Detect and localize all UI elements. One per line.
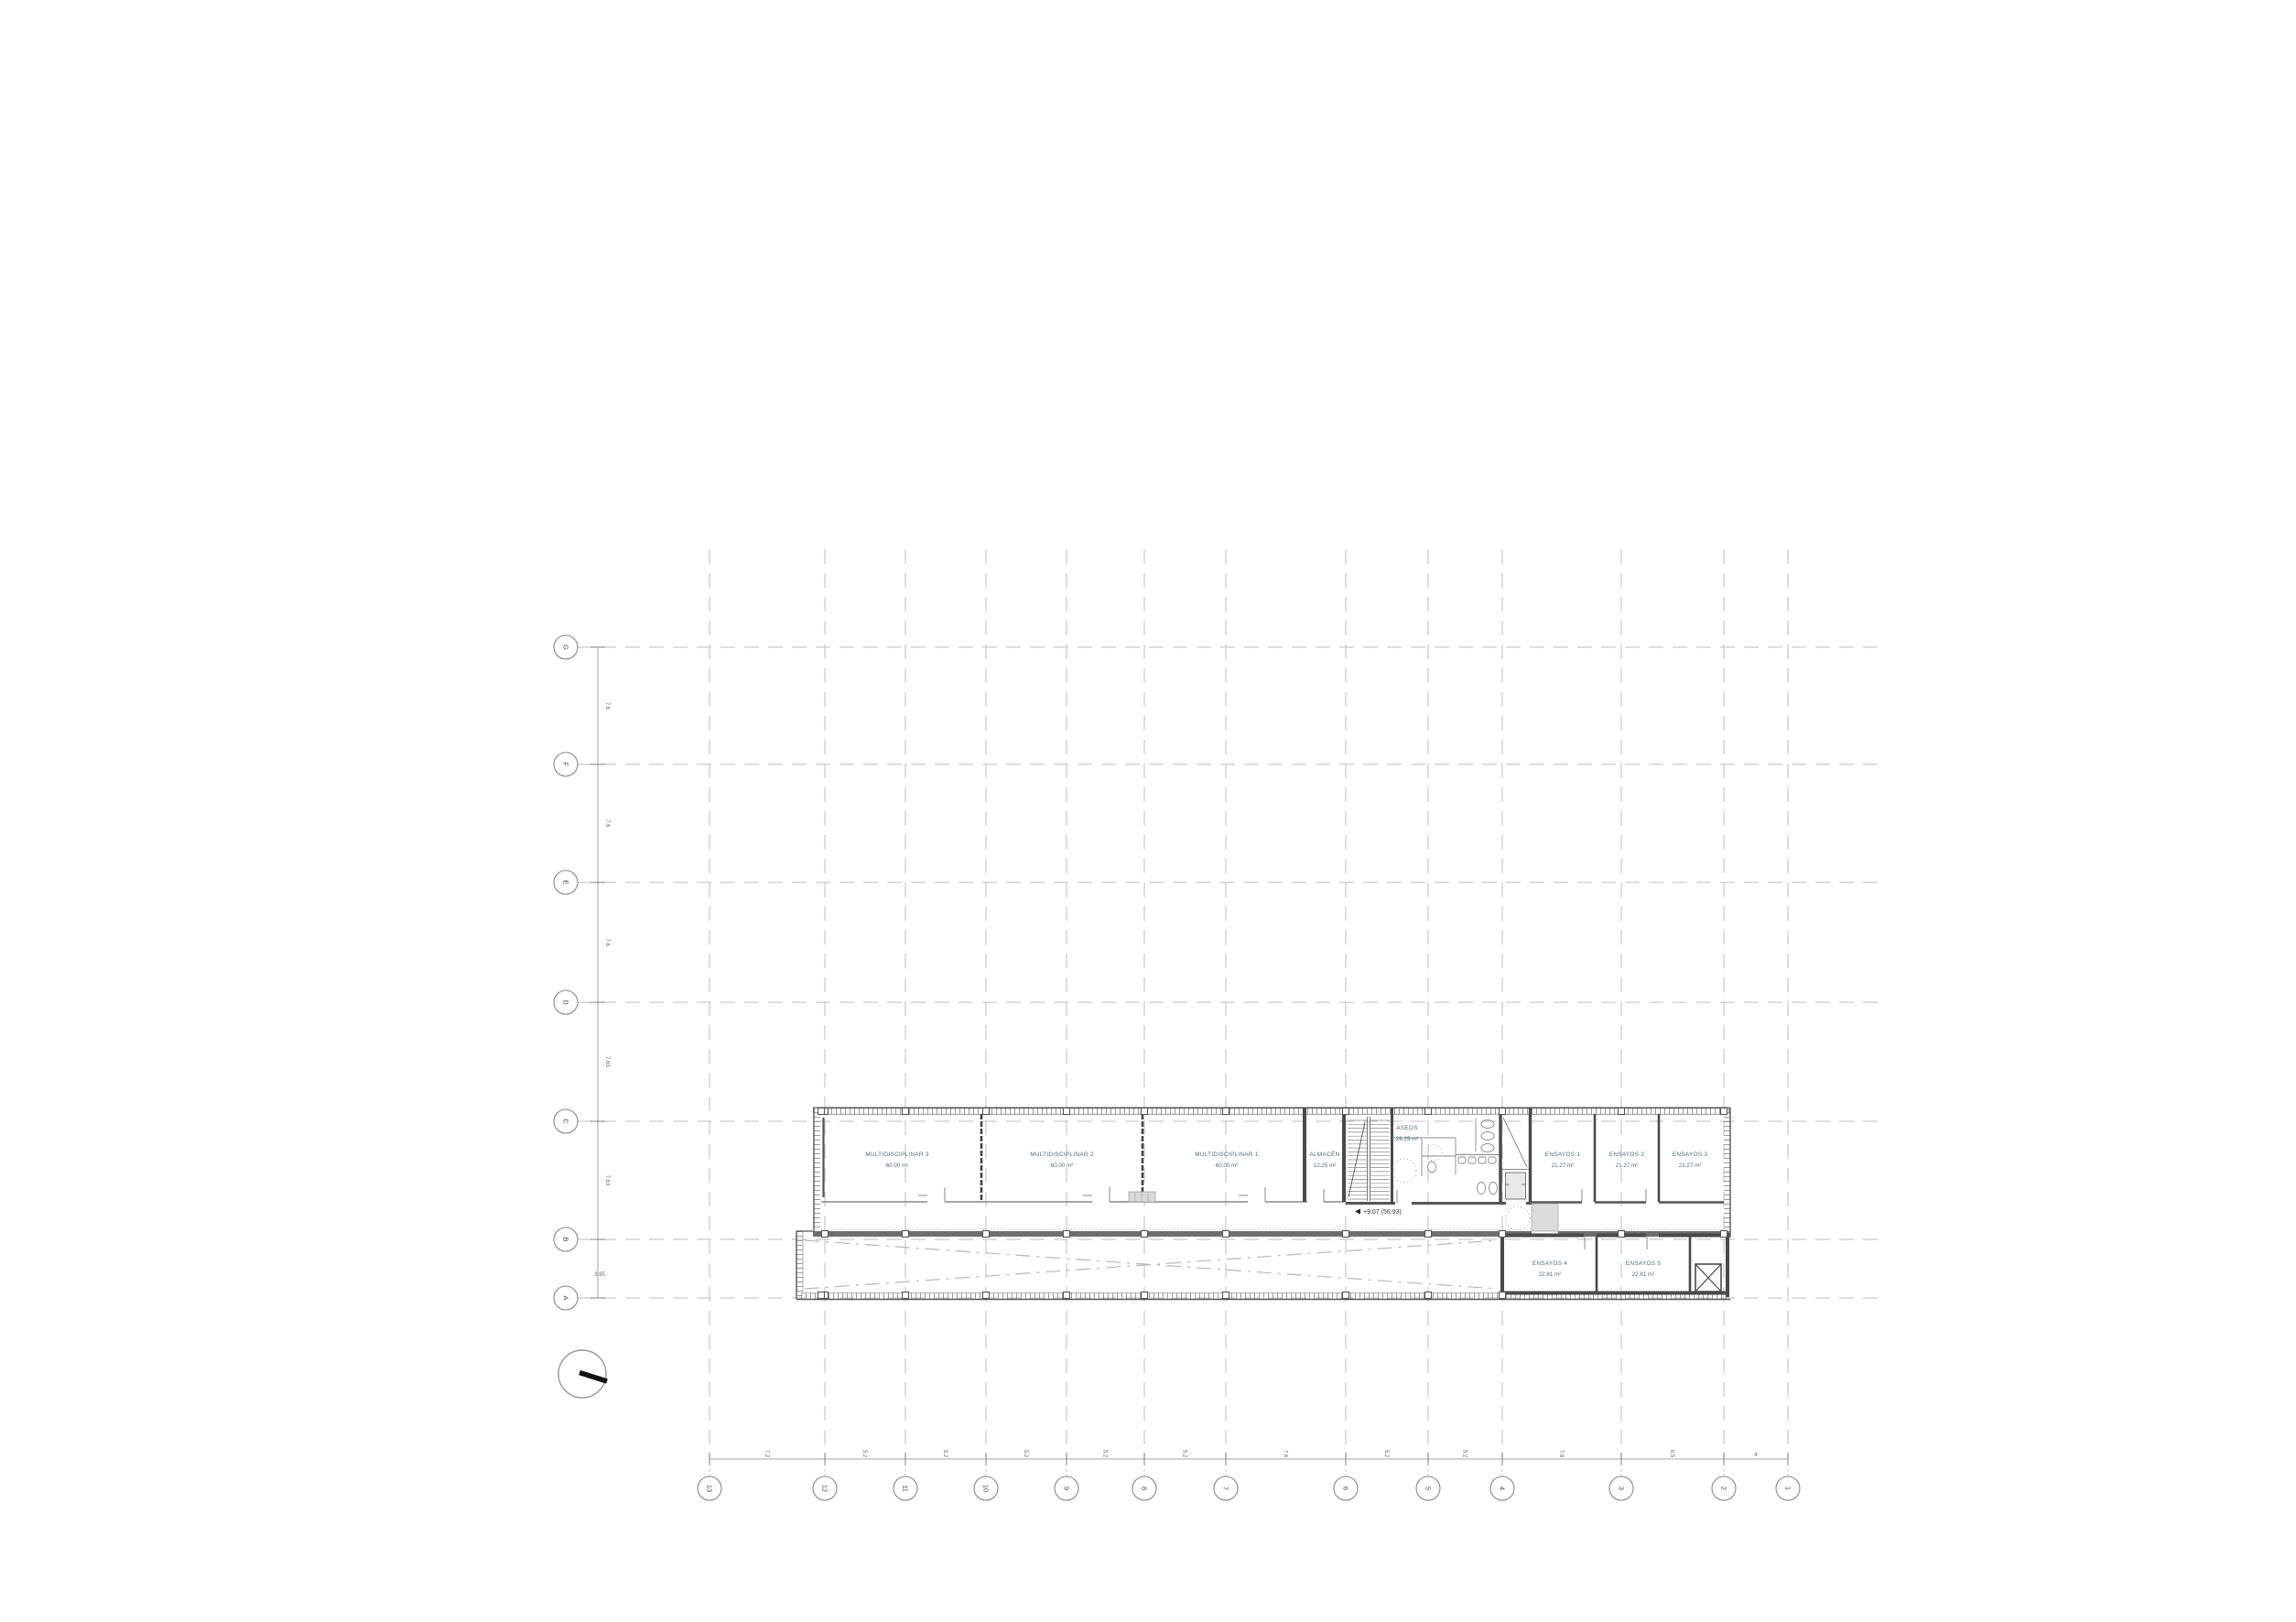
north-arrow — [558, 1350, 607, 1398]
col-dim-text: 5.2 — [1462, 1450, 1467, 1458]
elevator-shaft — [1502, 1118, 1529, 1199]
column-corridor — [1500, 1231, 1506, 1238]
room-label: ENSAYOS 4 — [1532, 1260, 1568, 1267]
grid-bubble-label-row: F — [562, 762, 570, 767]
corridor-bridge — [1532, 1204, 1558, 1231]
column-terrace — [1142, 1292, 1148, 1299]
room-area: 60.00 m² — [1051, 1162, 1073, 1169]
grid-bubble-label-row: D — [562, 1000, 570, 1005]
grid-bubble-label-col: 3 — [1618, 1487, 1626, 1490]
col-dim-text: 7.6 — [1283, 1450, 1288, 1458]
grid-bubble-label-col: 8 — [1141, 1487, 1149, 1490]
column-north — [818, 1108, 825, 1115]
elevator-car — [1506, 1173, 1526, 1199]
room-label: ALMACÉN — [1310, 1150, 1340, 1158]
grid-bubble-label-col: 7 — [1222, 1487, 1230, 1490]
column-corridor — [1142, 1231, 1148, 1238]
col-dim-text: 6.5 — [1669, 1450, 1674, 1458]
grid-bubble-label-col: 10 — [982, 1485, 991, 1492]
grid-bubble-label-row: G — [562, 644, 570, 650]
furniture-hatch — [1129, 1192, 1155, 1202]
row-dim-text: 7.63 — [604, 1056, 610, 1067]
column-north — [1500, 1108, 1506, 1115]
room-label: ENSAYOS 2 — [1609, 1152, 1645, 1158]
grid-bubble-label-col: 2 — [1720, 1487, 1728, 1490]
row-dim-text: 7.6 — [604, 702, 610, 710]
wc-5 — [1489, 1183, 1498, 1195]
room-area: 21.27 m² — [1616, 1162, 1638, 1169]
col-dim-text: 5.2 — [1023, 1450, 1028, 1458]
room-area: 28.29 m² — [1396, 1136, 1418, 1142]
row-dim-text: 7.6 — [604, 819, 610, 827]
column-terrace — [818, 1292, 825, 1299]
grid-bubble-label-row: A — [562, 1295, 570, 1300]
room-label: ENSAYOS 3 — [1673, 1152, 1708, 1158]
column-terrace — [903, 1292, 909, 1299]
col-dim-text: 5.2 — [1383, 1450, 1389, 1458]
column-markers — [818, 1108, 1727, 1299]
room-area: 12.25 m² — [1314, 1162, 1336, 1169]
column-corridor — [1064, 1231, 1070, 1238]
row-dim-text: 3.95 — [594, 1272, 605, 1278]
grid-bubble-label-col: 6 — [1342, 1487, 1350, 1490]
urinal-1 — [1458, 1157, 1466, 1163]
column-corridor — [903, 1231, 909, 1238]
column-north — [1619, 1108, 1625, 1115]
turning-circle-aseos — [1392, 1159, 1416, 1183]
grid-bubble-label-col: 4 — [1499, 1487, 1507, 1490]
grid-bubble-label-col: 5 — [1424, 1487, 1433, 1490]
grid-bubble-label-row: B — [562, 1237, 570, 1241]
col-dim-text: 5.2 — [942, 1450, 948, 1458]
urinal-4 — [1489, 1157, 1496, 1163]
urinal-3 — [1478, 1157, 1486, 1163]
column-terrace — [1223, 1292, 1229, 1299]
col-dim-text: 5.2 — [1102, 1450, 1108, 1458]
col-dim-text: 4 — [1754, 1453, 1758, 1458]
column-terrace — [1425, 1292, 1432, 1299]
row-dim-text: 7.6 — [604, 938, 610, 946]
col-dim-text: 7.2 — [764, 1450, 769, 1458]
col-dim-text: 5.2 — [861, 1450, 867, 1458]
grid-bubble-label-col: 9 — [1063, 1487, 1071, 1490]
level-marker-text: +9.07 (56.93) — [1363, 1209, 1402, 1216]
column-terrace — [1343, 1292, 1349, 1299]
column-north — [983, 1108, 990, 1115]
column-north — [1064, 1108, 1070, 1115]
column-terrace — [1064, 1292, 1070, 1299]
column-corridor — [822, 1231, 829, 1238]
room-label: MULTIDISCIPLINAR 3 — [865, 1152, 929, 1158]
column-corridor — [1223, 1231, 1229, 1238]
column-corridor — [983, 1231, 990, 1238]
grid-bubble-label-row: C — [562, 1119, 570, 1124]
room-area: 60.00 m² — [1216, 1162, 1238, 1169]
column-terrace — [983, 1292, 990, 1299]
column-north — [1343, 1108, 1349, 1115]
room-area: 21.27 m² — [1679, 1162, 1701, 1169]
column-north — [1425, 1108, 1432, 1115]
grid-bubble-label-col: 1 — [1784, 1487, 1792, 1490]
wc-4 — [1478, 1183, 1486, 1195]
room-area: 60.00 m² — [886, 1162, 908, 1169]
room-label: ENSAYOS 5 — [1626, 1260, 1662, 1267]
column-corridor — [1619, 1231, 1625, 1238]
grid-bubble-label-col: 11 — [902, 1485, 910, 1492]
column-north — [903, 1108, 909, 1115]
level-marker-flag — [1355, 1209, 1360, 1215]
room-label: ENSAYOS 1 — [1545, 1152, 1581, 1158]
floor-plan-drawing: G7.6F7.6E7.6D7.63C7.63B3.95A137.2125.211… — [0, 0, 2296, 1622]
corridor-south-wall-left — [813, 1231, 1532, 1237]
building-walls — [813, 1108, 1730, 1238]
column-north — [1223, 1108, 1229, 1115]
wc-2 — [1481, 1132, 1494, 1141]
column-terrace — [1500, 1292, 1506, 1299]
column-corridor — [1343, 1231, 1349, 1238]
room-label: MULTIDISCIPLINAR 2 — [1030, 1152, 1094, 1158]
grid-bubble-label-row: E — [562, 880, 570, 884]
door-leaves — [918, 1187, 1646, 1203]
wc-accessible — [1428, 1162, 1436, 1173]
shaft-diagonal — [1503, 1118, 1527, 1167]
room-area: 22.81 m² — [1632, 1271, 1654, 1278]
room-label: MULTIDISCIPLINAR 1 — [1195, 1152, 1259, 1158]
room-label: ASEOS — [1396, 1125, 1418, 1131]
grid-bubble-label-col: 12 — [821, 1485, 829, 1492]
room-area: 22.81 m² — [1539, 1271, 1561, 1278]
col-dim-text: 5.2 — [1182, 1450, 1187, 1458]
column-corridor — [1425, 1231, 1432, 1238]
row-dim-text: 7.63 — [604, 1175, 610, 1186]
col-dim-text: 7.8 — [1558, 1450, 1564, 1458]
column-north — [1142, 1108, 1148, 1115]
room-area: 21.27 m² — [1552, 1162, 1574, 1169]
wc-3 — [1481, 1144, 1494, 1152]
grid-layer: G7.6F7.6E7.6D7.63C7.63B3.95A137.2125.211… — [554, 549, 1886, 1500]
staircase — [1348, 1117, 1390, 1201]
level-marker: +9.07 (56.93) — [1355, 1209, 1402, 1216]
urinal-2 — [1468, 1157, 1476, 1163]
furniture-rect — [1129, 1192, 1155, 1202]
column-north — [1721, 1108, 1727, 1115]
turning-circle-lobby — [1506, 1206, 1530, 1230]
grid-bubble-label-col: 13 — [706, 1485, 714, 1492]
terrace-deck — [796, 1231, 1730, 1300]
column-corridor — [1721, 1231, 1727, 1238]
